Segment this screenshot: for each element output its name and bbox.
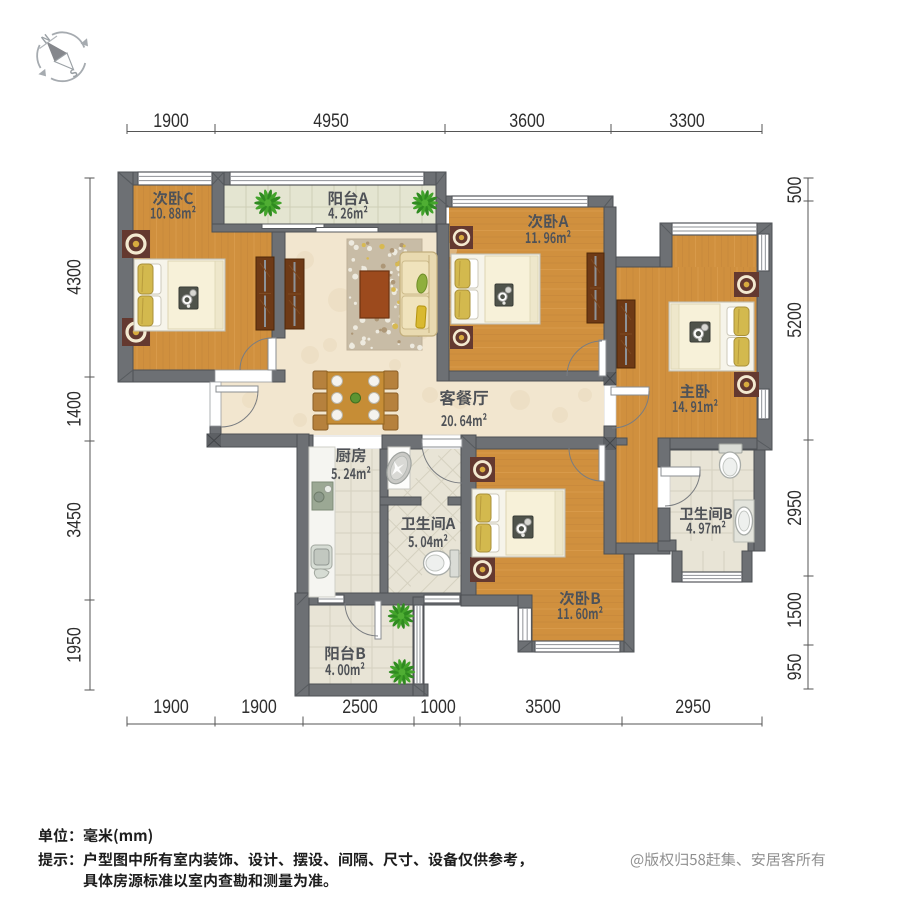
- svg-text:3300: 3300: [669, 111, 705, 132]
- svg-text:3450: 3450: [65, 502, 86, 538]
- svg-text:1950: 1950: [65, 627, 86, 663]
- svg-text:1400: 1400: [65, 391, 86, 427]
- svg-text:1900: 1900: [241, 697, 277, 718]
- svg-text:2500: 2500: [342, 697, 378, 718]
- svg-text:2950: 2950: [675, 697, 711, 718]
- svg-text:1900: 1900: [153, 697, 189, 718]
- svg-text:5200: 5200: [785, 302, 806, 338]
- svg-text:3600: 3600: [509, 111, 545, 132]
- svg-text:500: 500: [785, 177, 806, 204]
- svg-text:1900: 1900: [153, 111, 189, 132]
- svg-text:4950: 4950: [313, 111, 349, 132]
- svg-text:1000: 1000: [420, 697, 456, 718]
- svg-text:3500: 3500: [525, 697, 561, 718]
- svg-text:4300: 4300: [65, 259, 86, 295]
- svg-text:2950: 2950: [785, 490, 806, 526]
- svg-text:1500: 1500: [785, 592, 806, 628]
- svg-text:950: 950: [785, 654, 806, 681]
